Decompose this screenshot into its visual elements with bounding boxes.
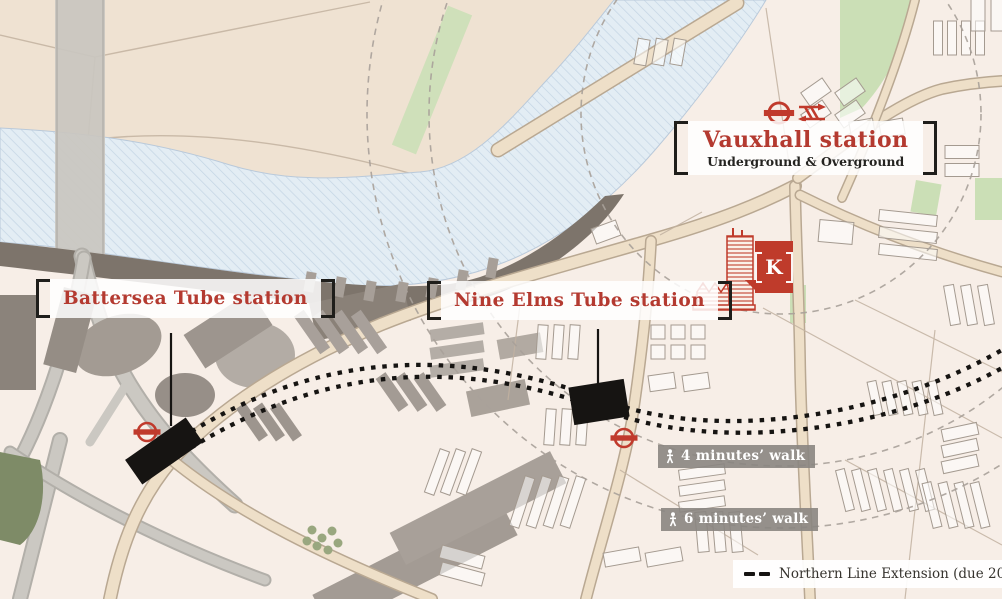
walk-time-badge-6min: 6 minutes’ walk [661, 508, 818, 531]
station-name: Battersea Tube station [63, 288, 308, 309]
building [671, 345, 685, 359]
chelsea-bridge [55, 0, 105, 260]
building [971, 0, 985, 31]
walk-time-badge-4min: 4 minutes’ walk [658, 445, 815, 468]
bracket-left [755, 252, 762, 283]
building [691, 345, 705, 359]
building [552, 325, 564, 360]
bracket-right [321, 279, 335, 318]
building [682, 372, 710, 391]
legend: Northern Line Extension (due 2020) [733, 560, 1002, 588]
keybridge-k-marker: K [755, 241, 793, 293]
bracket-right [718, 281, 732, 320]
bracket-left [674, 121, 688, 175]
station-name: Vauxhall station [703, 127, 908, 153]
building [945, 146, 979, 159]
bracket-left [427, 281, 441, 320]
building [691, 325, 705, 339]
building [991, 0, 1002, 31]
station-name: Nine Elms Tube station [454, 290, 705, 311]
dotted-line-icon [744, 572, 770, 577]
walk-icon [665, 449, 675, 464]
battersea-station-label: Battersea Tube station [36, 279, 335, 318]
building [651, 345, 665, 359]
building [568, 325, 580, 360]
building [560, 409, 572, 446]
vauxhall-station-label: Vauxhall station Underground & Overgroun… [674, 121, 937, 175]
building [948, 21, 957, 55]
label-box: Vauxhall station Underground & Overgroun… [688, 121, 923, 175]
building [648, 372, 676, 391]
building [544, 409, 556, 446]
building [651, 325, 665, 339]
label-box: Nine Elms Tube station [441, 281, 718, 320]
legend-text: Northern Line Extension (due 2020) [779, 566, 1002, 582]
building [536, 325, 548, 360]
k-letter: K [765, 257, 782, 277]
map-infographic: Battersea Tube station Nine Elms Tube st… [0, 0, 1002, 599]
walk-time-text: 6 minutes’ walk [684, 511, 808, 527]
walk-icon [668, 512, 678, 527]
building [818, 220, 854, 245]
bracket-right [923, 121, 937, 175]
station-subtitle: Underground & Overground [707, 154, 904, 169]
label-box: Battersea Tube station [50, 279, 321, 318]
bracket-left [36, 279, 50, 318]
bracket-right [786, 252, 793, 283]
building [934, 21, 943, 55]
nine-elms-station-label: Nine Elms Tube station [427, 281, 732, 320]
walk-time-text: 4 minutes’ walk [681, 448, 805, 464]
building [671, 325, 685, 339]
marker-tail [745, 280, 756, 291]
